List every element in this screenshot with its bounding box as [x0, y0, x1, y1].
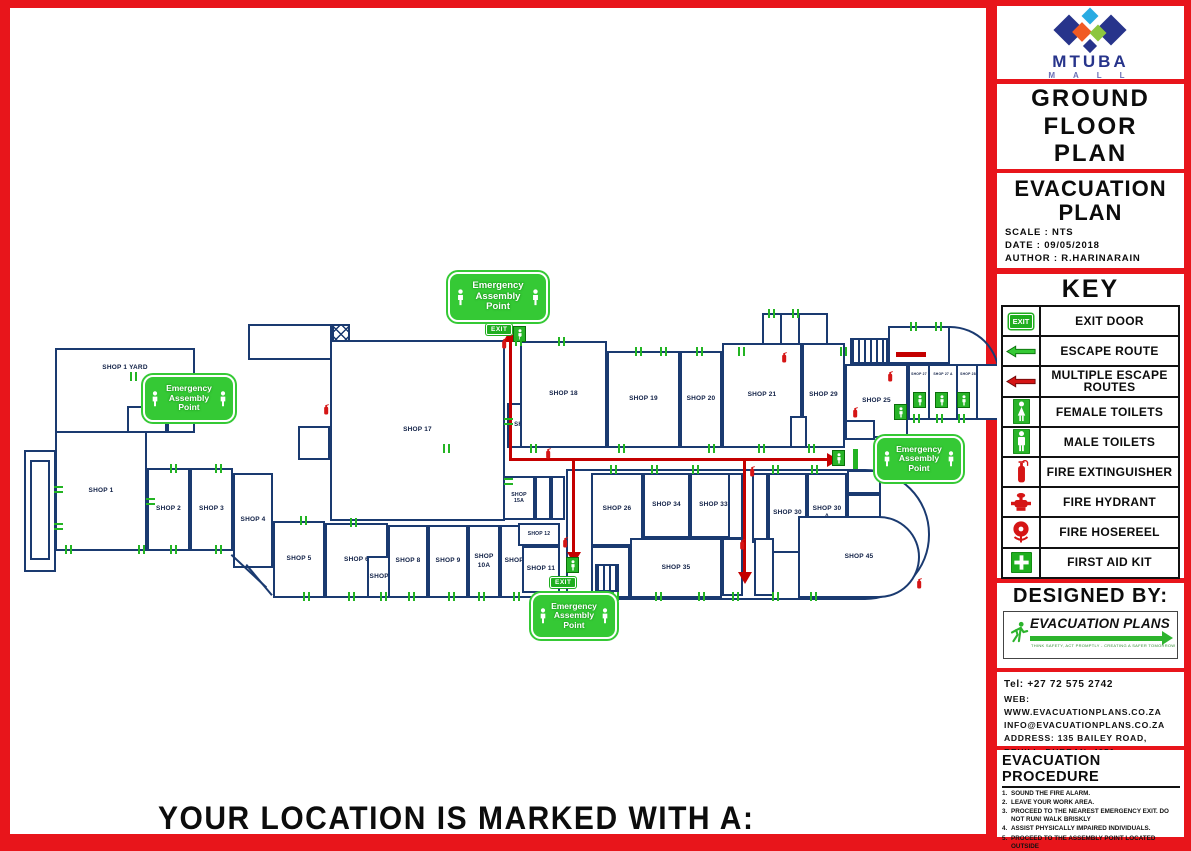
key-label: FEMALE TOILETS [1041, 398, 1178, 426]
door-marker [513, 592, 520, 601]
door-marker [758, 444, 765, 453]
shop-label: SHOP 26 [603, 505, 632, 513]
door-marker [792, 309, 799, 318]
shop-label: SHOP 11 [527, 565, 555, 573]
plan-title-panel: GROUND FLOOR PLAN [997, 84, 1184, 169]
escape-route-line [572, 458, 575, 554]
door-marker [768, 309, 775, 318]
door-marker [935, 322, 942, 331]
plan-room [595, 564, 619, 592]
door-marker [530, 444, 537, 453]
key-row: MALE TOILETS [1003, 428, 1178, 458]
door-marker [558, 337, 565, 346]
emergency-assembly-point-badge: Emergency Assembly Point [875, 436, 963, 482]
shop-label: SHOP 35 [662, 564, 691, 572]
shop-room: SHOP 9 [428, 525, 468, 598]
emergency-assembly-point-badge: Emergency Assembly Point [448, 272, 548, 322]
plan-room [790, 416, 807, 448]
shop-label: SHOP 21 [748, 391, 777, 399]
multiple-escape-routes-arrow-icon [1003, 367, 1041, 395]
door-marker [504, 478, 513, 485]
shop-room: SHOP 8 [388, 525, 428, 598]
key-row: MULTIPLE ESCAPE ROUTES [1003, 367, 1178, 397]
toilet-icon [913, 392, 926, 408]
fire-extinguisher-icon [561, 535, 569, 546]
door-marker [138, 545, 145, 554]
plan-room [847, 494, 881, 518]
door-marker [808, 444, 815, 453]
escape-route-line [509, 458, 829, 461]
shop-label: SHOP 17 [403, 426, 432, 434]
designed-by-title: DESIGNED BY: [997, 585, 1184, 608]
plan-author: AUTHOR : R.HARINARAIN [1005, 253, 1184, 264]
escape-route-arrowhead [738, 572, 752, 584]
key-label: FIRST AID KIT [1041, 549, 1178, 577]
emergency-assembly-point-badge: Emergency Assembly Point [143, 375, 235, 422]
plan-title-line: PLAN [997, 140, 1184, 168]
interior-wall [780, 313, 782, 345]
key-row: ESCAPE ROUTE [1003, 337, 1178, 367]
designed-by-panel: DESIGNED BY: EVACUATION PLANS THINK SAFE… [997, 583, 1184, 668]
plan-room [248, 324, 332, 360]
door-marker [54, 523, 63, 530]
shop-label: SHOP 10A [471, 553, 497, 569]
shop-label: SHOP 6 [344, 556, 369, 564]
exit-door-badge: EXIT [486, 324, 512, 335]
person-icon [455, 289, 466, 306]
door-marker [692, 465, 699, 474]
key-label: MULTIPLE ESCAPE ROUTES [1041, 367, 1178, 395]
shop-label: SHOP 5 [287, 555, 312, 563]
door-marker [300, 516, 307, 525]
door-marker [698, 592, 705, 601]
door-marker [54, 486, 63, 493]
door-marker [772, 465, 779, 474]
shop-room: SHOP 10A [468, 525, 500, 598]
shop-room: SHOP 2 [147, 468, 190, 551]
door-marker [610, 465, 617, 474]
shop-label: SHOP 2 [156, 505, 181, 513]
key-title: KEY [997, 275, 1184, 304]
door-marker [811, 465, 818, 474]
contact-address: ADDRESS: 135 BAILEY ROAD, [1004, 732, 1184, 745]
fire-extinguisher-icon [886, 369, 894, 380]
evacuation-procedure-panel: EVACUATION PROCEDURE 1.SOUND THE FIRE AL… [997, 750, 1184, 837]
door-marker [303, 592, 310, 601]
person-icon [530, 289, 541, 306]
door-marker [215, 464, 222, 473]
door-marker [840, 347, 847, 356]
evacuation-plan-title: EVACUATION [997, 177, 1184, 201]
plan-room [728, 473, 743, 539]
plan-room [551, 476, 565, 520]
fire-extinguisher-icon [738, 537, 746, 548]
key-table: EXIT EXIT DOOR ESCAPE ROUTE MULTIPLE ESC… [1001, 305, 1180, 579]
key-row: FEMALE TOILETS [1003, 398, 1178, 428]
shop-label: SHOP 8 [396, 557, 421, 565]
shop-label: SHOP 33 [699, 501, 728, 509]
escape-route-line [509, 341, 512, 460]
your-location-text: YOUR LOCATION IS MARKED WITH A: [158, 801, 754, 838]
assembly-point-label: Emergency Assembly Point [548, 602, 600, 630]
mall-logo-panel: MTUBA M A L L [997, 6, 1184, 79]
key-label: FIRE HOSEREEL [1041, 518, 1178, 546]
plan-room [850, 338, 888, 364]
toilet-icon [935, 392, 948, 408]
procedure-title: EVACUATION PROCEDURE [1002, 753, 1180, 788]
fire-hosereel-icon [1003, 518, 1041, 546]
door-marker [738, 347, 745, 356]
procedure-step: 1.SOUND THE FIRE ALARM. [1002, 790, 1180, 798]
shop-room: SHOP 20 [680, 351, 722, 448]
red-room-label [896, 352, 926, 357]
door-marker [130, 372, 137, 381]
door-marker [515, 337, 522, 346]
person-icon [600, 608, 610, 624]
exit-door-badge: EXIT [550, 577, 576, 588]
shop-room: SHOP 12 [518, 523, 560, 546]
toilet-icon [957, 392, 970, 408]
door-marker [810, 592, 817, 601]
door-marker [696, 347, 703, 356]
shop-label: SHOP 19 [629, 395, 658, 403]
evacuation-plans-wordmark: EVACUATION PLANS [1030, 616, 1175, 631]
door-marker [350, 518, 357, 527]
mall-name: MTUBA [997, 53, 1184, 70]
plan-title-line: GROUND [997, 85, 1184, 113]
person-icon [946, 451, 956, 467]
shop-room: SHOP 26 [591, 473, 643, 546]
running-man-icon [1007, 620, 1029, 644]
door-marker [660, 347, 667, 356]
door-marker [146, 498, 155, 505]
key-row: EXIT EXIT DOOR [1003, 307, 1178, 337]
interior-wall [928, 364, 930, 420]
shop-room: SHOP 17 [330, 340, 505, 521]
fire-extinguisher-icon [780, 350, 788, 361]
exit-person-icon [832, 450, 845, 466]
door-marker [170, 545, 177, 554]
key-row: FIRST AID KIT [1003, 549, 1178, 577]
contact-tel: Tel: +27 72 575 2742 [1004, 677, 1184, 693]
person-icon [218, 391, 228, 407]
door-marker [910, 322, 917, 331]
shop-room: SHOP 3 [190, 468, 233, 551]
first-aid-kit-icon [1003, 549, 1041, 577]
procedure-step: 5.PROCEED TO THE ASSEMBLY POINT LOCATED … [1002, 835, 1180, 851]
shop-room: SHOP 5 [273, 521, 325, 598]
shop-room: SHOP 18 [520, 341, 607, 448]
door-marker [348, 592, 355, 601]
evacuation-plan-title: PLAN [997, 201, 1184, 225]
fire-extinguisher-icon [915, 576, 923, 587]
emergency-assembly-point-badge: Emergency Assembly Point [531, 593, 617, 639]
plan-date: DATE : 09/05/2018 [1005, 240, 1184, 251]
door-marker [215, 545, 222, 554]
plan-room [30, 460, 50, 560]
key-label: FIRE HYDRANT [1041, 488, 1178, 516]
door-marker [618, 444, 625, 453]
door-marker [443, 444, 450, 453]
door-marker [772, 592, 779, 601]
plan-room [845, 420, 875, 440]
diagonal-wall [245, 564, 272, 596]
shop-label: SHOP 9 [436, 557, 461, 565]
door-marker [635, 347, 642, 356]
shop-label: SHOP 15A [506, 492, 532, 505]
escape-route-arrow-icon [1003, 337, 1041, 365]
key-row: FIRE HOSEREEL [1003, 518, 1178, 548]
door-marker [170, 464, 177, 473]
shop-label: SHOP 4 [241, 516, 266, 524]
shop-room: SHOP 29 [802, 343, 845, 448]
shop-room: SHOP 27 [909, 368, 929, 380]
door-marker [380, 592, 387, 601]
key-label: MALE TOILETS [1041, 428, 1178, 456]
mall-subtitle: M A L L [997, 71, 1184, 80]
plan-title-line: FLOOR [997, 113, 1184, 141]
door-marker [651, 465, 658, 474]
assembly-point-label: Emergency Assembly Point [160, 384, 218, 412]
door-marker [958, 414, 965, 423]
logo-tagline: THINK SAFETY, ACT PROMPTLY - CREATING A … [1031, 643, 1175, 648]
fire-extinguisher-icon [322, 402, 330, 413]
procedure-step: 2.LEAVE YOUR WORK AREA. [1002, 799, 1180, 807]
shop-room: SHOP 4 [233, 473, 273, 568]
curved-outer-wall [946, 326, 1000, 408]
mtuba-logo-icon [1056, 9, 1126, 53]
evacuation-plans-logo: EVACUATION PLANS THINK SAFETY, ACT PROMP… [1003, 611, 1178, 659]
fire-hydrant-icon [1003, 488, 1041, 516]
fire-extinguisher-icon [1003, 458, 1041, 486]
plan-room [298, 426, 330, 460]
escape-route-line [743, 458, 746, 574]
door-marker [655, 592, 662, 601]
door-marker [708, 444, 715, 453]
key-row: FIRE HYDRANT [1003, 488, 1178, 518]
shop-room: SHOP 45 [798, 516, 920, 598]
procedure-step: 4.ASSIST PHYSICALLY IMPAIRED INDIVIDUALS… [1002, 825, 1180, 833]
door-marker [913, 414, 920, 423]
key-label: EXIT DOOR [1041, 307, 1178, 335]
door-marker [408, 592, 415, 601]
shop-label: SHOP 1 [89, 487, 114, 495]
plan-room [888, 326, 950, 364]
door-marker [478, 592, 485, 601]
door-marker [65, 545, 72, 554]
person-icon [538, 608, 548, 624]
toilet-icon [894, 404, 907, 420]
exit-door-marker [853, 449, 858, 469]
fire-extinguisher-icon [500, 336, 508, 347]
shop-label: SHOP 3 [199, 505, 224, 513]
female-toilets-icon [1003, 398, 1041, 426]
shop-label: SHOP 45 [845, 553, 874, 561]
shop-label: SHOP 27 [911, 372, 927, 376]
person-icon [150, 391, 160, 407]
plan-room [752, 473, 768, 543]
male-toilets-icon [1003, 428, 1041, 456]
procedure-step: 3.PROCEED TO THE NEAREST EMERGENCY EXIT.… [1002, 808, 1180, 824]
door-marker [448, 592, 455, 601]
assembly-point-label: Emergency Assembly Point [466, 281, 530, 312]
shop-label: SHOP 1 YARD [102, 364, 147, 372]
shop-room: SHOP 35 [630, 538, 722, 598]
person-icon [882, 451, 892, 467]
key-row: FIRE EXTINGUISHER [1003, 458, 1178, 488]
assembly-point-label: Emergency Assembly Point [892, 445, 946, 473]
shop-label: SHOP 12 [528, 531, 550, 537]
door-marker [936, 414, 943, 423]
shop-label: SHOP 29 [809, 391, 838, 399]
shop-label: SHOP 18 [549, 390, 578, 398]
fire-extinguisher-icon [851, 405, 859, 416]
fire-extinguisher-icon [544, 446, 552, 457]
shop-label: SHOP 34 [652, 501, 681, 509]
contact-email: INFO@EVACUATIONPLANS.CO.ZA [1004, 719, 1184, 732]
plan-room [535, 476, 551, 520]
plan-scale: SCALE : NTS [1005, 227, 1184, 238]
shop-label: SHOP 20 [687, 395, 716, 403]
logo-arrow [1030, 636, 1163, 641]
fire-extinguisher-icon [748, 464, 756, 475]
evacuation-plan-panel: EVACUATION PLAN SCALE : NTS DATE : 09/05… [997, 173, 1184, 268]
door-marker [732, 592, 739, 601]
contact-web: WEB: WWW.EVACUATIONPLANS.CO.ZA [1004, 693, 1184, 720]
plan-room [754, 538, 774, 596]
shop-room: SHOP 1 [55, 431, 147, 551]
floor-plan-sheet: SHOP 1 YARDSHOP 1SHOP 2SHOP 3SHOP 4SHOP … [10, 8, 986, 834]
key-label: FIRE EXTINGUISHER [1041, 458, 1178, 486]
shop-room: SHOP 34 [643, 473, 690, 538]
exit-door-icon: EXIT [1003, 307, 1041, 335]
key-panel: KEY EXIT EXIT DOOR ESCAPE ROUTE MULTIPLE… [997, 274, 1184, 578]
key-label: ESCAPE ROUTE [1041, 337, 1178, 365]
shop-label: SHOP 25 [862, 397, 891, 405]
shop-room: SHOP 19 [607, 351, 680, 448]
door-marker [504, 418, 513, 425]
contact-panel: Tel: +27 72 575 2742 WEB: WWW.EVACUATION… [997, 672, 1184, 746]
exit-person-icon [566, 557, 579, 573]
